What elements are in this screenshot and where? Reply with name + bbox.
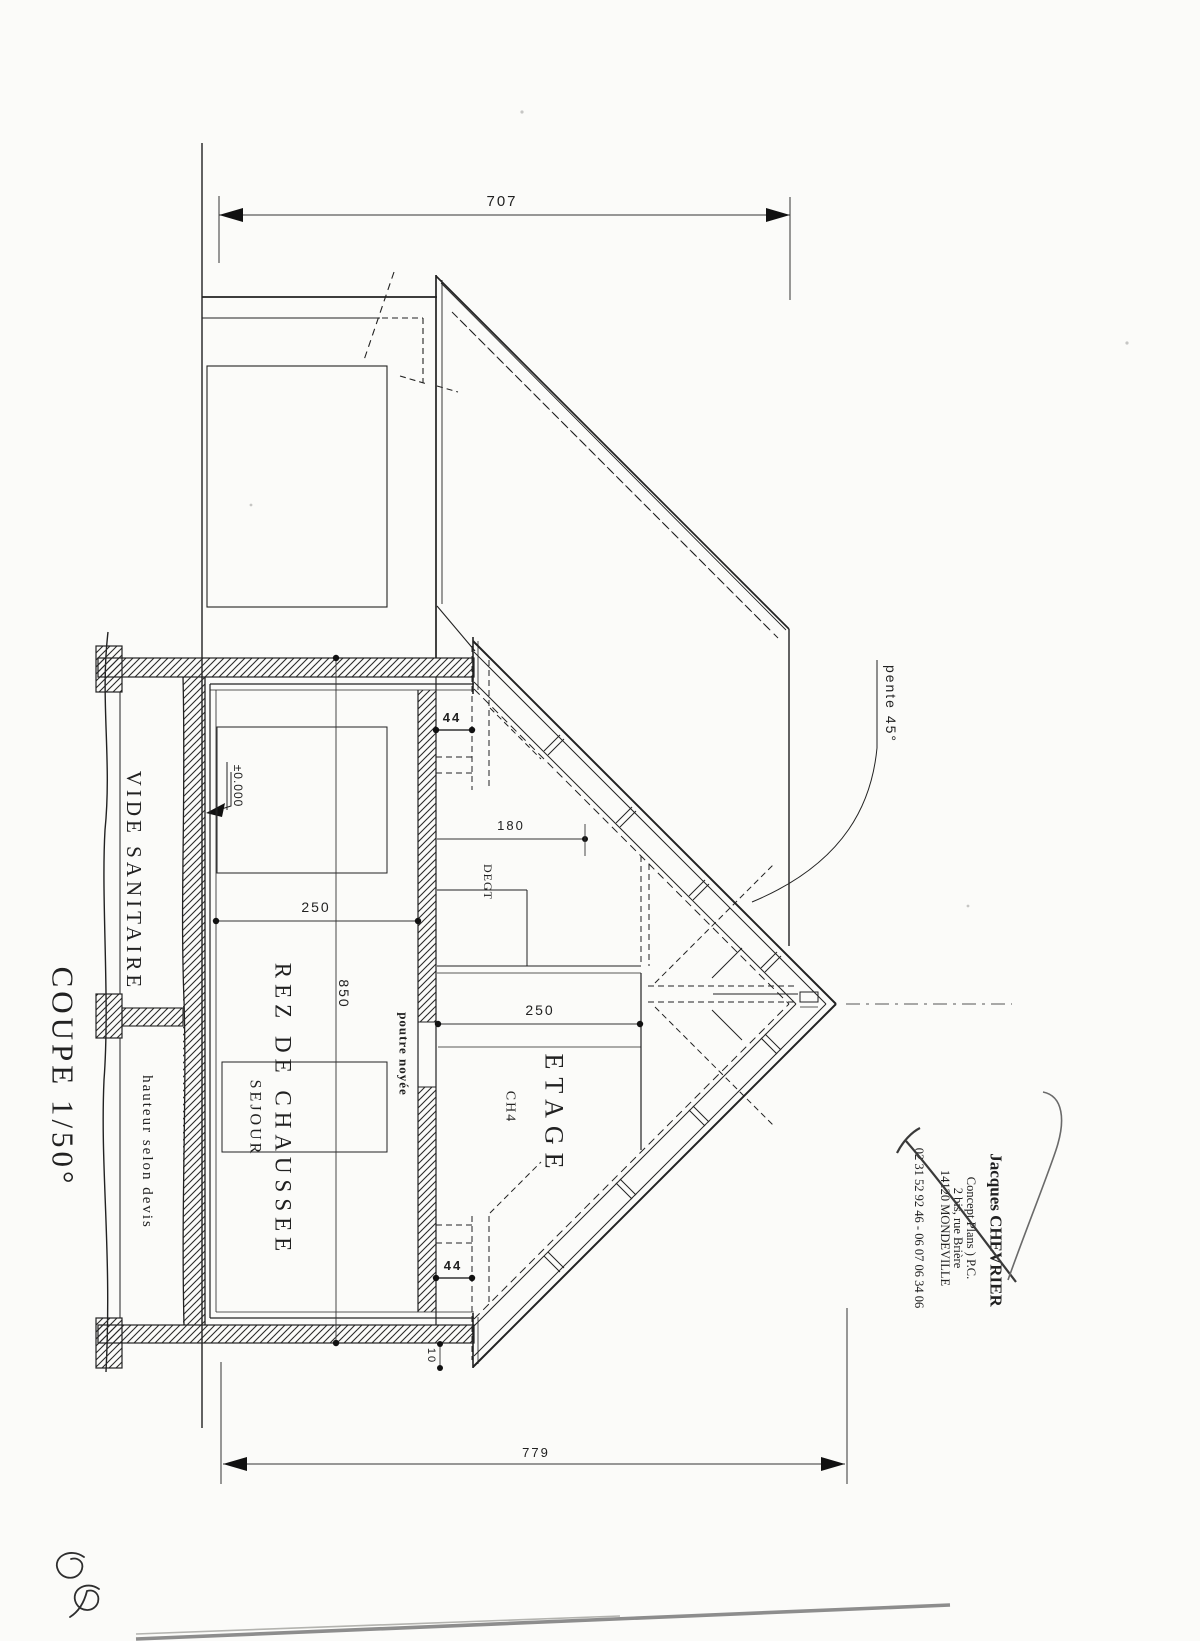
dimension-707: 707 <box>219 193 790 300</box>
drawing-title: COUPE 1/50° <box>46 967 81 1188</box>
floor-slab <box>418 677 436 1325</box>
label-vide-sanitaire: VIDE SANITAIRE <box>122 771 146 992</box>
title-block: Jacques CHEVRIER Concept Plans ) P.C. 2 … <box>912 1148 1006 1308</box>
label-poutre-noyee: poutre noyée <box>397 1012 412 1096</box>
wall-bottom <box>98 1325 474 1343</box>
wall-top <box>98 658 474 677</box>
scanned-section-drawing: 707 <box>0 0 1200 1641</box>
ground-edge <box>136 1605 950 1639</box>
label-hauteur-devis: hauteur selon devis <box>139 1075 155 1229</box>
arrow-right-icon <box>821 1457 845 1471</box>
slope-annotation: pente 45° <box>752 660 899 902</box>
elevation-roof-edge <box>436 276 789 629</box>
label-pente-45: pente 45° <box>883 665 899 743</box>
arrow-right-icon <box>766 208 790 222</box>
scan-specks <box>250 110 1129 907</box>
label-etage: ETAGE <box>540 1053 569 1176</box>
ground-lines <box>136 1605 950 1639</box>
architect-name: Jacques CHEVRIER <box>987 1153 1006 1307</box>
arrow-left-icon <box>223 1457 247 1471</box>
label-rez-de-chaussee: REZ DE CHAUSSEE <box>271 963 296 1257</box>
gable-elevation <box>202 272 789 946</box>
ground-slab <box>183 677 205 1325</box>
roof-battens-bottom <box>544 1034 781 1272</box>
dim-44-top-label: 44 <box>443 710 461 725</box>
slab-hatch <box>183 677 205 1325</box>
dim-850-label: 850 <box>336 979 352 1008</box>
slope-leader <box>752 748 877 902</box>
dim-44-bottom-label: 44 <box>444 1258 462 1273</box>
dim-707-label: 707 <box>486 193 517 210</box>
label-sejour: SEJOUR <box>247 1080 264 1157</box>
coupe-svg: 707 <box>0 0 1200 1641</box>
dim-10-label: 10 <box>425 1348 437 1364</box>
level-arrow-icon <box>206 803 225 817</box>
label-ch4: CH4 <box>503 1091 518 1123</box>
dim-250-rdc-label: 250 <box>301 899 330 915</box>
dim-779-label: 779 <box>522 1445 550 1460</box>
handwritten-initials <box>57 1553 99 1617</box>
dim-180-label: 180 <box>497 818 525 833</box>
elevation-window <box>207 366 387 607</box>
pen-curve <box>1008 1092 1062 1280</box>
roof-bottom-outer <box>473 1004 836 1367</box>
architect-line5: 02 31 52 92 46 - 06 07 06 34 06 <box>912 1148 926 1308</box>
dim-250-etage-label: 250 <box>525 1002 554 1018</box>
sleeper-wall <box>122 1008 183 1026</box>
arrow-left-icon <box>219 208 243 222</box>
truss-webs <box>648 863 798 1127</box>
foundations <box>96 632 183 1372</box>
level-label: ±0.000 <box>231 765 245 808</box>
level-mark: ±0.000 <box>206 762 245 817</box>
roof-battens-top <box>544 735 781 972</box>
label-degt: DEGT <box>481 864 495 900</box>
footing-middle <box>96 994 122 1038</box>
